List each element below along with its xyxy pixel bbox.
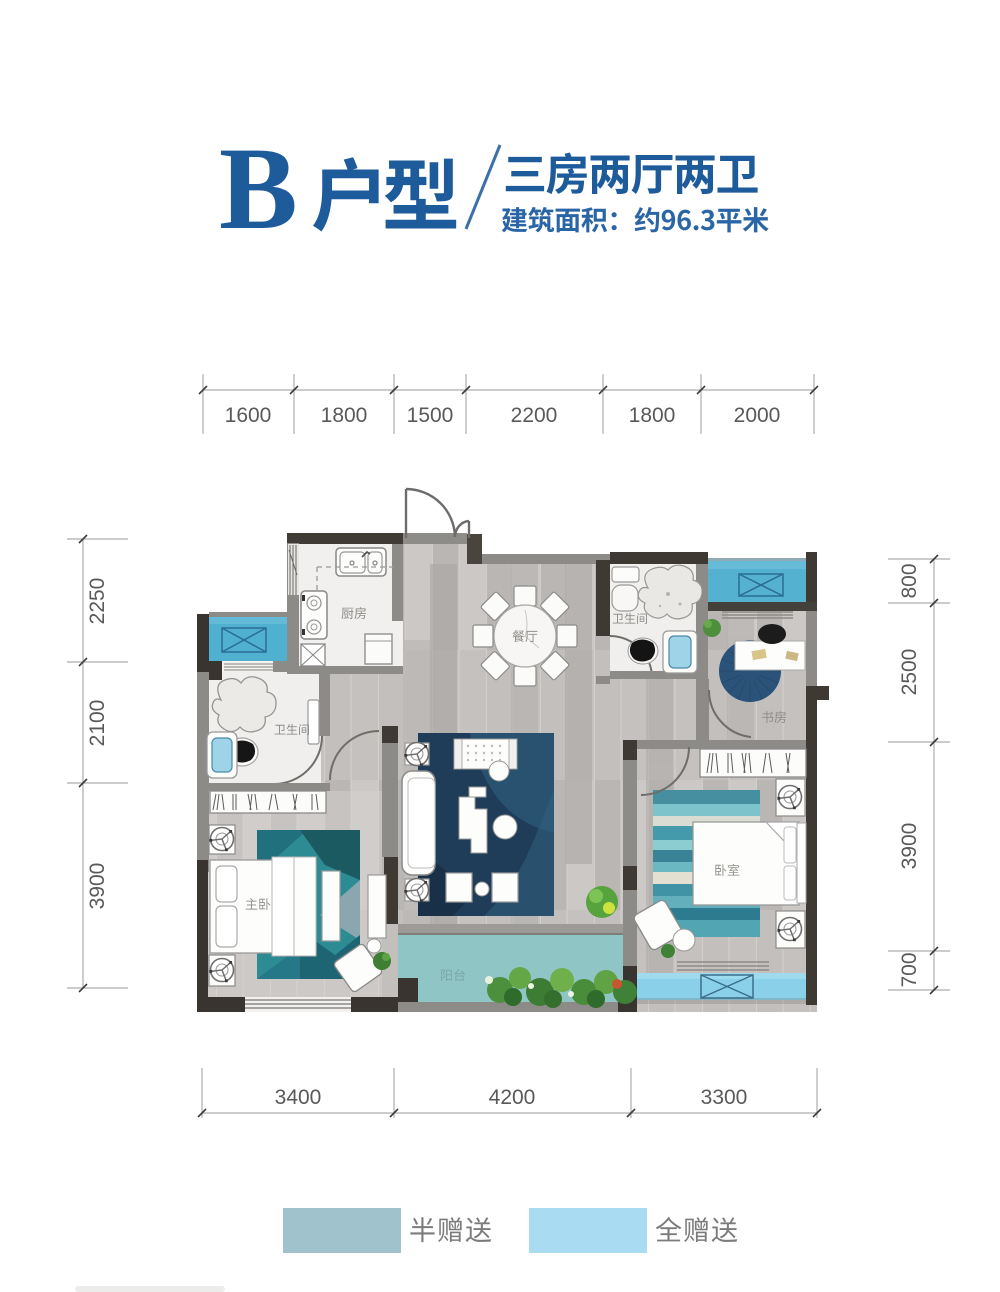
- svg-text:3900: 3900: [898, 823, 921, 870]
- svg-text:1600: 1600: [225, 404, 272, 427]
- svg-text:700: 700: [898, 952, 921, 987]
- svg-text:4200: 4200: [489, 1086, 536, 1109]
- svg-text:2100: 2100: [86, 700, 109, 747]
- svg-text:2250: 2250: [86, 578, 109, 625]
- svg-text:3400: 3400: [275, 1086, 322, 1109]
- svg-text:1500: 1500: [407, 404, 454, 427]
- svg-text:3300: 3300: [701, 1086, 748, 1109]
- svg-text:3900: 3900: [86, 863, 109, 910]
- svg-text:2000: 2000: [734, 404, 781, 427]
- svg-text:2500: 2500: [898, 649, 921, 696]
- svg-text:1800: 1800: [629, 404, 676, 427]
- svg-text:1800: 1800: [321, 404, 368, 427]
- svg-text:2200: 2200: [511, 404, 558, 427]
- svg-text:800: 800: [898, 563, 921, 598]
